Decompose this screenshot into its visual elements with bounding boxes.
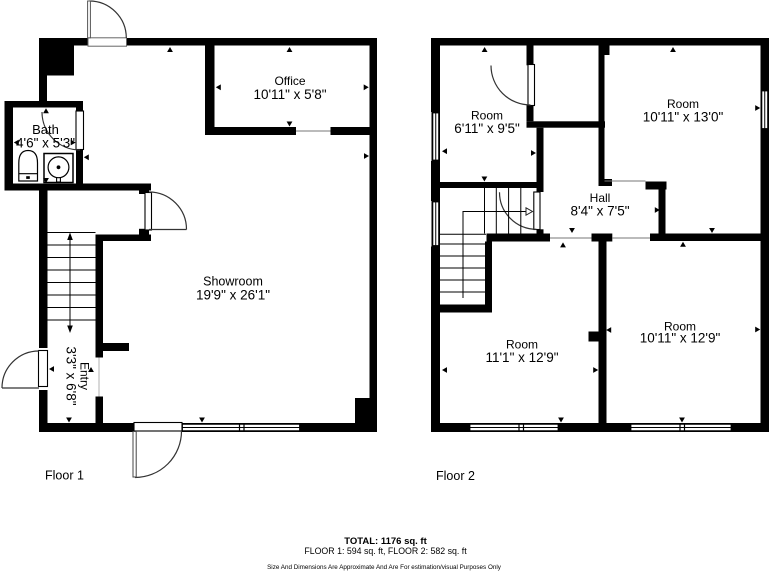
svg-text:Office: Office: [274, 74, 305, 88]
svg-text:Entry: Entry: [78, 362, 92, 390]
svg-text:10'11" x 12'9": 10'11" x 12'9": [640, 331, 721, 346]
svg-text:4'6" x 5'3": 4'6" x 5'3": [16, 136, 75, 151]
svg-text:8'4" x 7'5": 8'4" x 7'5": [570, 203, 629, 218]
svg-text:3'3" x 6'8": 3'3" x 6'8": [64, 346, 79, 405]
svg-text:10'11" x 13'0": 10'11" x 13'0": [643, 110, 724, 125]
svg-text:Showroom: Showroom: [203, 275, 263, 289]
svg-text:10'11" x 5'8": 10'11" x 5'8": [253, 87, 326, 102]
svg-text:6'11" x 9'5": 6'11" x 9'5": [454, 121, 520, 136]
svg-text:Size And Dimensions Are Approx: Size And Dimensions Are Approximate And …: [267, 564, 502, 571]
svg-text:19'9" x 26'1": 19'9" x 26'1": [196, 288, 270, 303]
svg-text:FLOOR 1: 594 sq. ft, FLOOR 2:: FLOOR 1: 594 sq. ft, FLOOR 2: 582 sq. ft: [304, 546, 467, 556]
svg-text:Floor 2: Floor 2: [436, 469, 475, 483]
svg-text:11'1" x 12'9": 11'1" x 12'9": [485, 350, 558, 365]
svg-text:Floor 1: Floor 1: [45, 469, 84, 483]
